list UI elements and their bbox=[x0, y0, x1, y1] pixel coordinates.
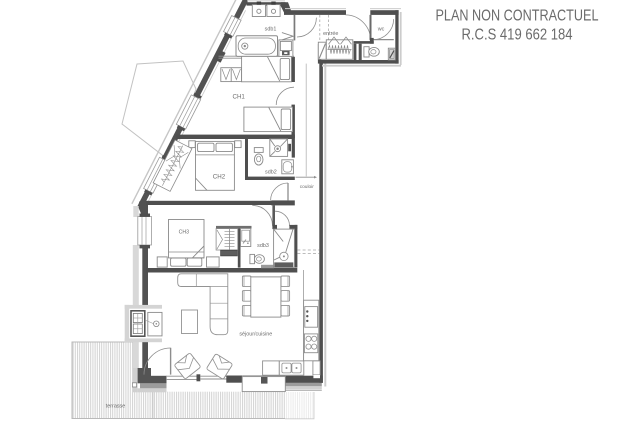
svg-text:entrée: entrée bbox=[323, 31, 338, 37]
svg-text:R.C.S 419 662 184: R.C.S 419 662 184 bbox=[462, 27, 573, 44]
svg-text:wc: wc bbox=[377, 27, 385, 33]
svg-text:sdb3: sdb3 bbox=[257, 243, 269, 249]
svg-text:couloir: couloir bbox=[300, 184, 315, 190]
svg-text:sdb2: sdb2 bbox=[265, 170, 277, 176]
svg-text:CH2: CH2 bbox=[213, 173, 226, 180]
svg-text:CH1: CH1 bbox=[233, 94, 246, 101]
svg-text:PLAN NON CONTRACTUEL: PLAN NON CONTRACTUEL bbox=[436, 8, 599, 25]
svg-text:CH3: CH3 bbox=[179, 229, 189, 235]
svg-text:séjour/cuisine: séjour/cuisine bbox=[239, 331, 272, 337]
svg-text:sdb1: sdb1 bbox=[265, 27, 277, 33]
svg-text:terrasse: terrasse bbox=[106, 404, 125, 410]
